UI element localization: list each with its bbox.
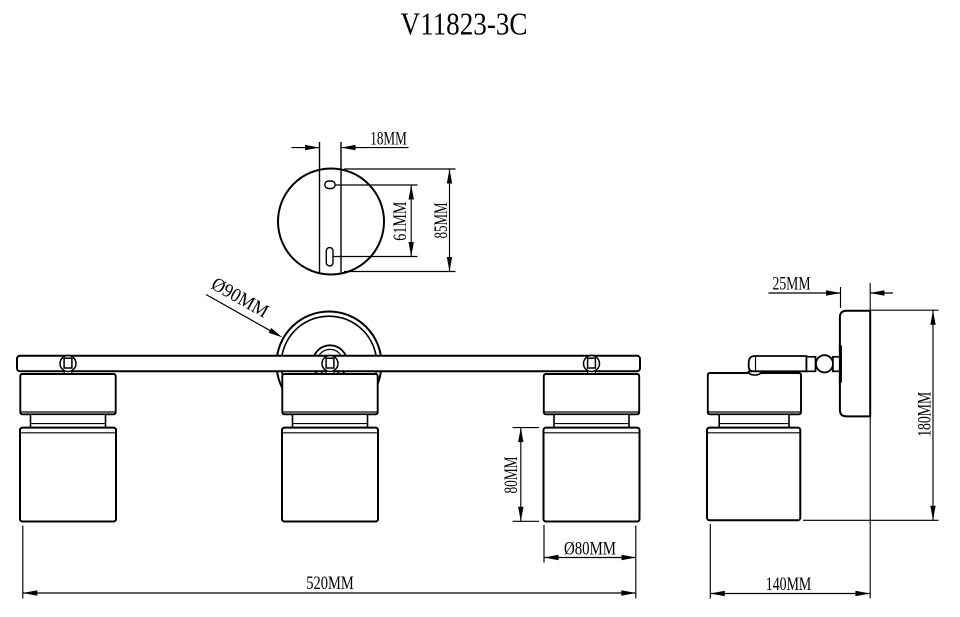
svg-text:Ø80MM: Ø80MM (564, 540, 616, 560)
svg-text:80MM: 80MM (502, 457, 522, 494)
svg-text:Ø90MM: Ø90MM (208, 274, 272, 323)
svg-text:140MM: 140MM (766, 575, 812, 595)
svg-text:61MM: 61MM (391, 202, 411, 241)
svg-text:85MM: 85MM (432, 203, 452, 239)
svg-text:18MM: 18MM (370, 130, 407, 150)
svg-text:V11823-3C: V11823-3C (401, 6, 528, 42)
svg-text:180MM: 180MM (916, 392, 936, 437)
svg-text:25MM: 25MM (773, 275, 811, 295)
svg-text:520MM: 520MM (306, 574, 354, 594)
